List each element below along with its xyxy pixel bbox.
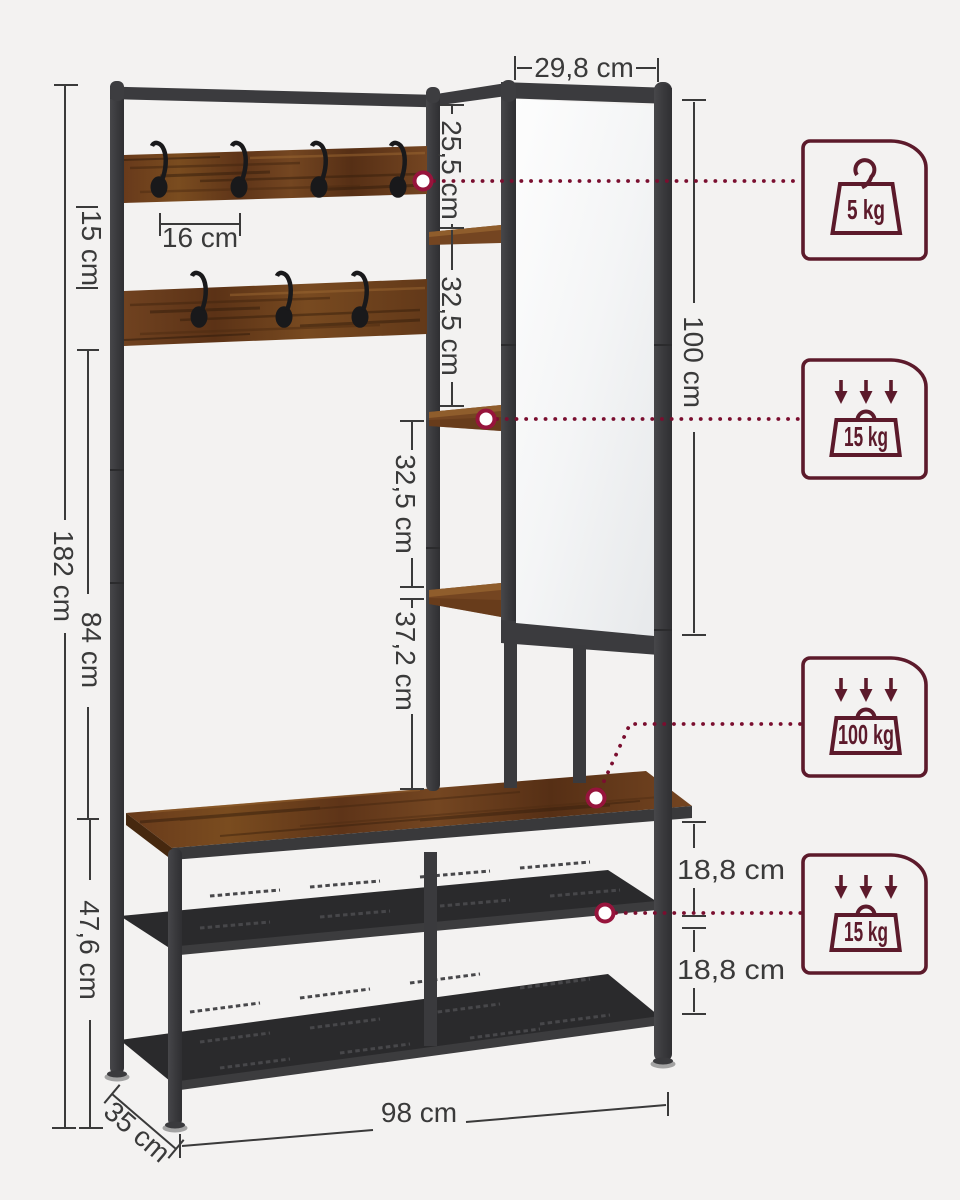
svg-text:182 cm: 182 cm [48,530,79,622]
svg-text:84 cm: 84 cm [76,612,107,688]
svg-text:18,8 cm: 18,8 cm [677,954,785,985]
svg-text:16 cm: 16 cm [162,222,238,253]
svg-text:29,8 cm: 29,8 cm [534,52,634,83]
svg-text:18,8 cm: 18,8 cm [677,854,785,885]
svg-text:25,5 cm: 25,5 cm [436,120,467,220]
svg-text:15 kg: 15 kg [844,421,888,452]
svg-text:15 kg: 15 kg [844,916,888,947]
svg-text:98 cm: 98 cm [381,1097,457,1128]
svg-text:47,6 cm: 47,6 cm [74,900,105,1000]
svg-text:5 kg: 5 kg [847,194,885,225]
svg-text:32,5 cm: 32,5 cm [436,276,467,376]
svg-text:15 cm: 15 cm [76,210,107,286]
svg-text:32,5 cm: 32,5 cm [390,454,421,554]
svg-text:100 cm: 100 cm [678,316,709,408]
svg-text:37,2 cm: 37,2 cm [390,611,421,711]
svg-text:100 kg: 100 kg [838,719,894,750]
